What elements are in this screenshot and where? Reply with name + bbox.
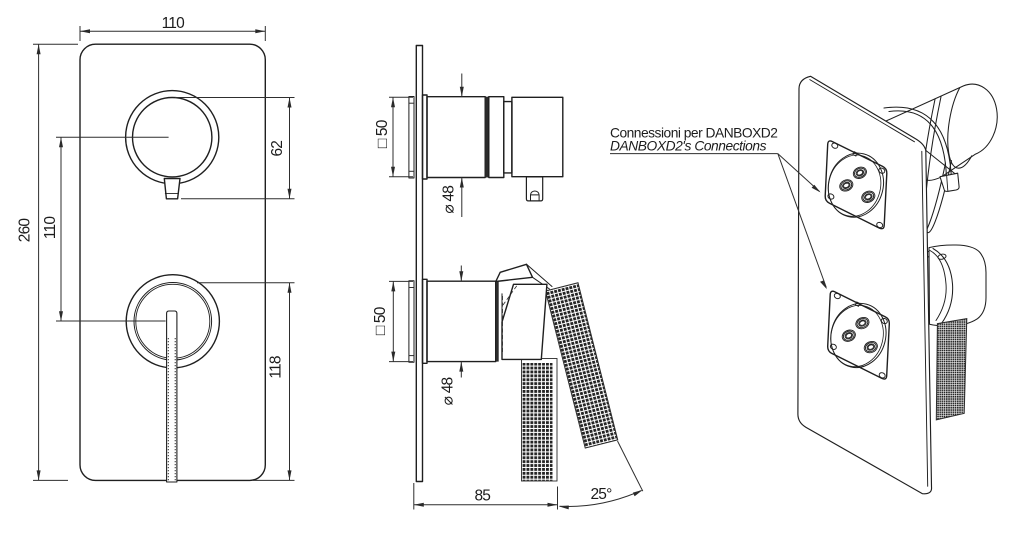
svg-text:□ 50: □ 50 bbox=[372, 306, 389, 335]
svg-text:260: 260 bbox=[17, 218, 34, 243]
svg-text:62: 62 bbox=[269, 141, 286, 157]
svg-text:118: 118 bbox=[268, 356, 285, 378]
svg-text:110: 110 bbox=[42, 216, 59, 239]
svg-text:⌀ 48: ⌀ 48 bbox=[441, 186, 458, 214]
svg-text:□ 50: □ 50 bbox=[374, 119, 391, 148]
svg-text:85: 85 bbox=[474, 488, 490, 505]
svg-text:⌀ 48: ⌀ 48 bbox=[440, 377, 457, 405]
svg-text:25°: 25° bbox=[590, 486, 612, 503]
svg-text:110: 110 bbox=[162, 15, 185, 32]
svg-text:DANBOXD2's Connections: DANBOXD2's Connections bbox=[610, 139, 767, 154]
